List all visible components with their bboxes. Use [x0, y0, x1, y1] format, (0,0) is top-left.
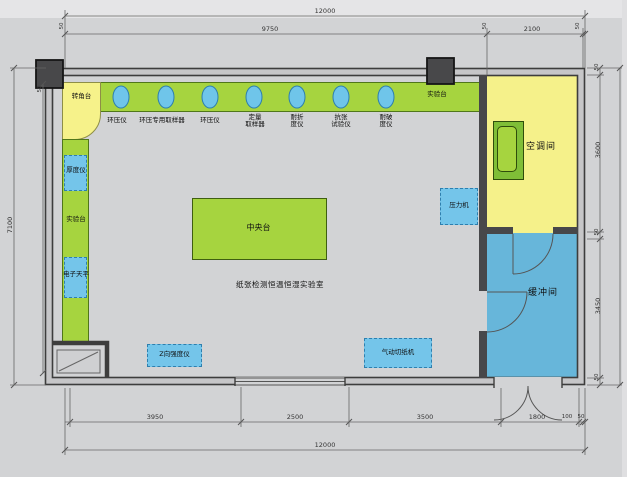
left-bench-label: 实验台	[57, 216, 95, 223]
dim-bottom-3: 3500	[395, 413, 455, 421]
floor-plan: 转角台 实验台 实验台 中央台 纸张检测恒温恒湿实验室 空调间 缓冲间 环压仪 …	[0, 0, 627, 477]
instrument-icon	[246, 86, 262, 108]
window	[235, 377, 345, 386]
dim-top-main: 9750	[240, 25, 300, 33]
instrument-icon	[378, 86, 394, 108]
dim-bottom-1: 3950	[125, 413, 185, 421]
central-bench-label: 中央台	[192, 223, 325, 232]
z-tester-label: Z向强度仪	[147, 351, 202, 358]
dim-wall-tick: 50	[37, 82, 43, 96]
dim-wall-tick: 50	[59, 19, 65, 33]
dim-bottom-2: 2500	[265, 413, 325, 421]
instrument-label: 定量 取样器	[235, 114, 275, 129]
instrument-icon	[158, 86, 174, 108]
instrument-label: 环压专用取样器	[130, 117, 194, 124]
dim-wall-tick: 50	[594, 60, 600, 74]
ac-buffer-door	[513, 234, 553, 274]
instrument-label: 抗张 试验仪	[321, 114, 361, 129]
corner-sink	[52, 343, 107, 377]
dim-top-total: 12000	[285, 7, 365, 15]
dim-wall-tick: 50	[482, 19, 488, 33]
dim-bottom-total: 12000	[285, 441, 365, 449]
dim-wall-tick: 50	[575, 19, 581, 33]
dim-top-right: 2100	[502, 25, 562, 33]
instrument-icon	[113, 86, 129, 108]
pneumatic-cutter-label: 气动切纸机	[364, 349, 432, 356]
dim-left-total: 7100	[6, 209, 14, 241]
corner-bench-label: 转角台	[62, 93, 101, 100]
instrument-label: 耐破 度仪	[366, 114, 406, 129]
press-label: 压力机	[438, 202, 480, 209]
room-name-label: 纸张检测恒温恒湿实验室	[205, 281, 355, 290]
dim-right-ac: 3600	[594, 134, 602, 166]
column-icon	[427, 58, 454, 84]
dim-right-buffer: 3450	[594, 290, 602, 322]
instrument-label: 环压仪	[188, 117, 232, 124]
dim-wall-tick: 50	[594, 225, 600, 239]
dim-wall-tick: 50	[594, 370, 600, 384]
ac-room-label: 空调间	[513, 142, 569, 152]
top-bench-label: 实验台	[417, 91, 457, 98]
instrument-icon	[289, 86, 305, 108]
thickness-gauge-label: 厚度仪	[56, 167, 96, 174]
buffer-room-label: 缓冲间	[515, 288, 571, 298]
instrument-icon	[333, 86, 349, 108]
dim-bottom-6: 50	[574, 414, 588, 420]
bench-instrument-icons	[113, 86, 394, 108]
instrument-icon	[202, 86, 218, 108]
balance-label: 电子天平	[54, 271, 98, 278]
instrument-label: 耐折 度仪	[277, 114, 317, 129]
